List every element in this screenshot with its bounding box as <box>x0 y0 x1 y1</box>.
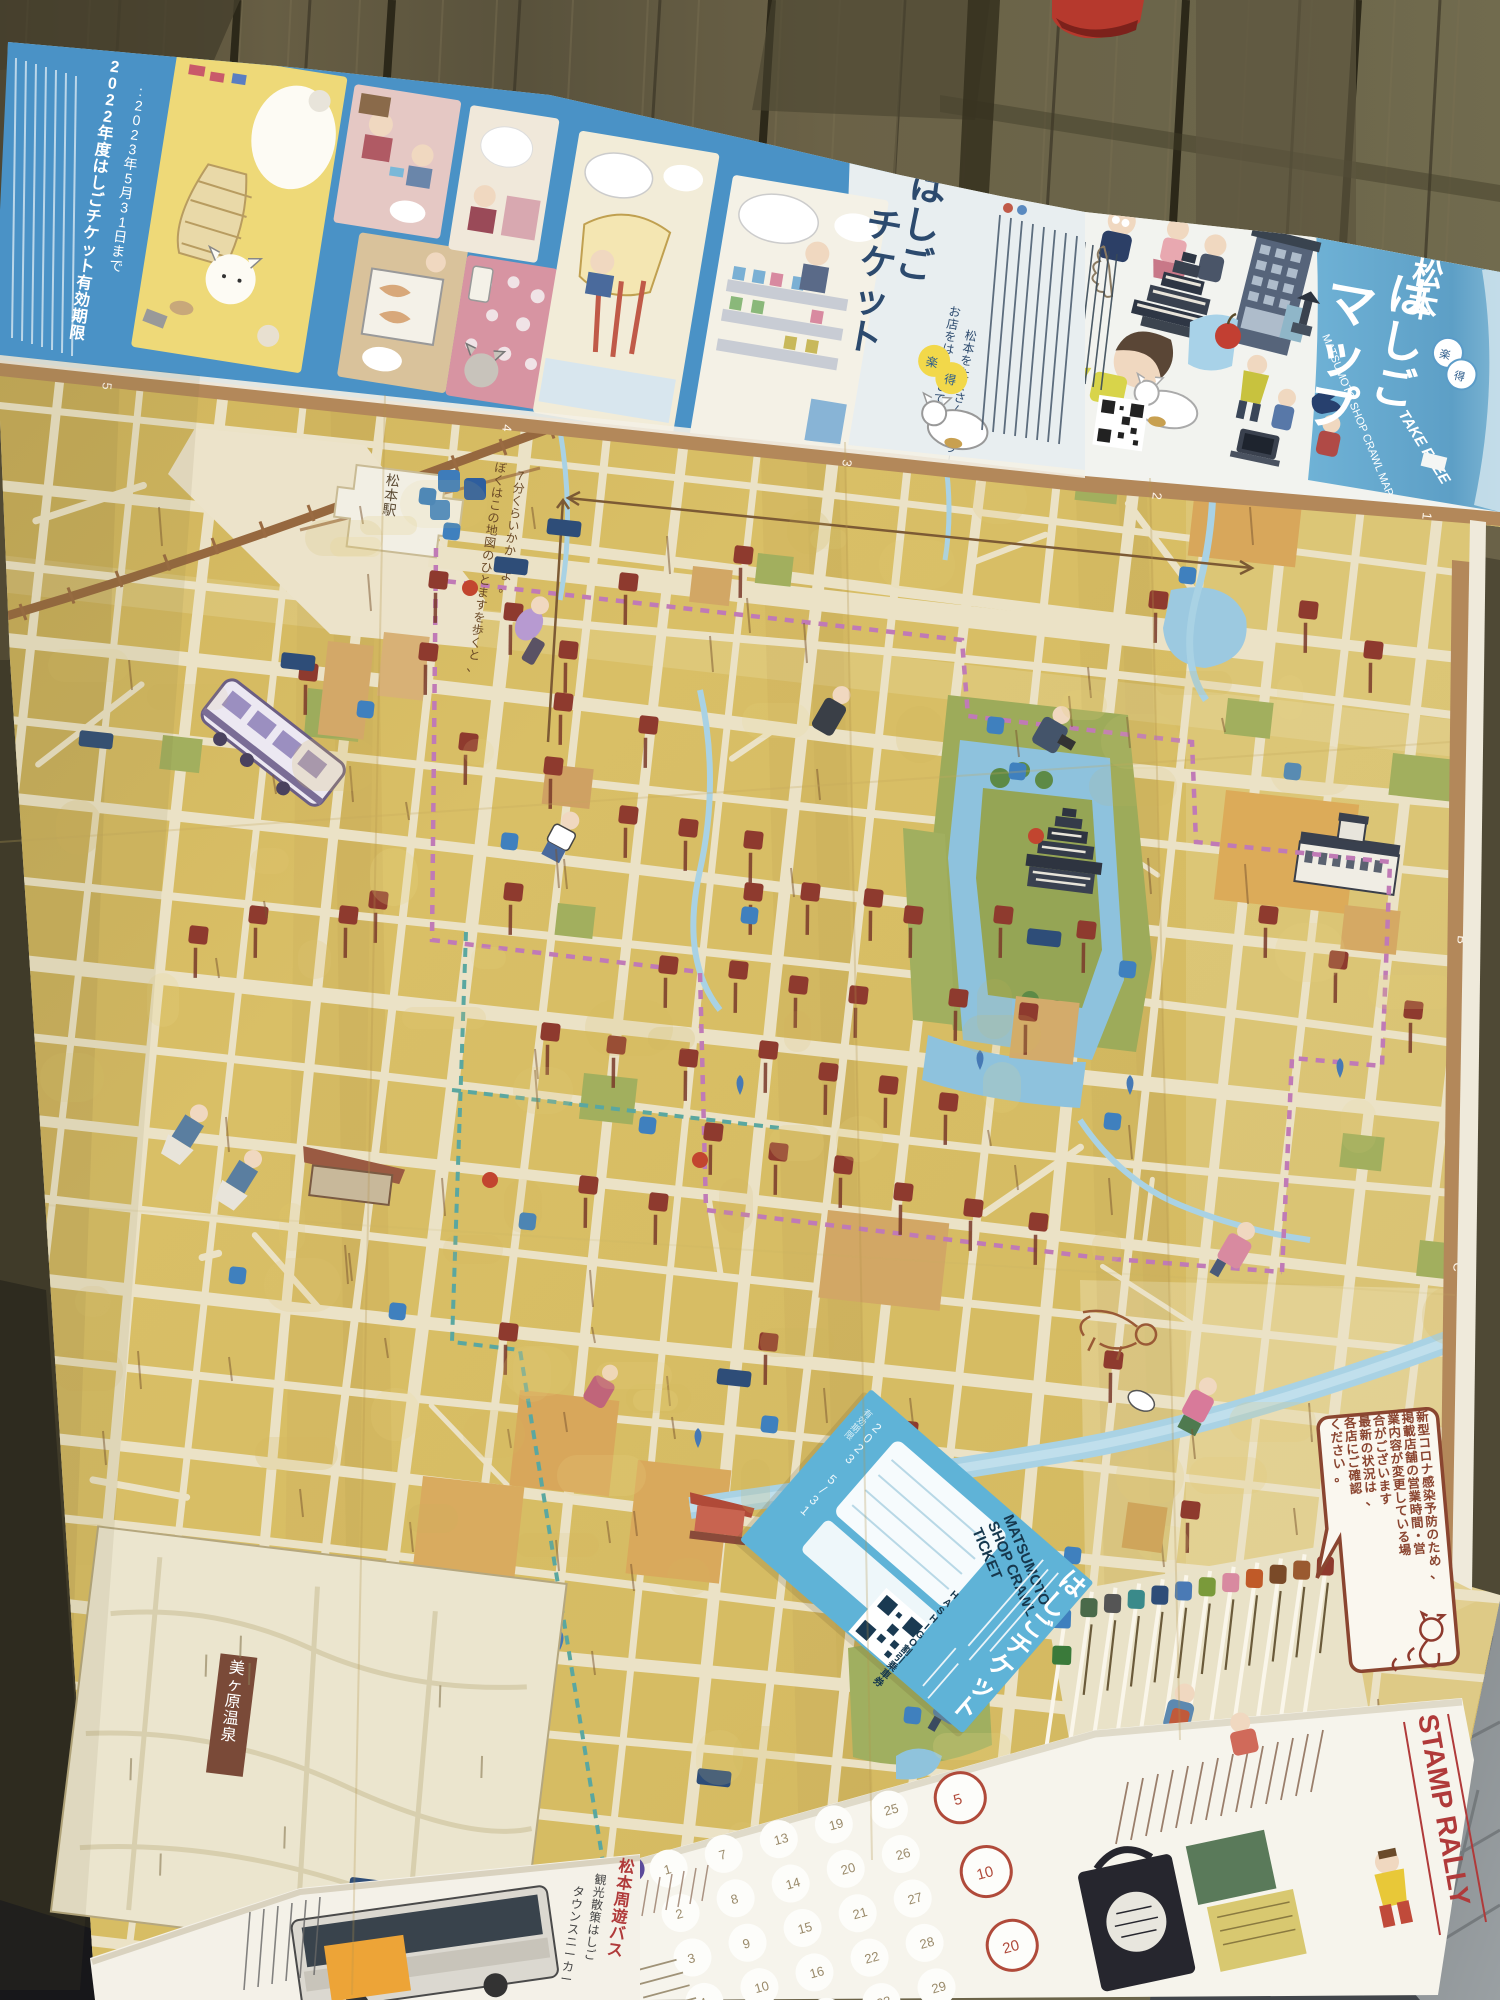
svg-text:ご: ご <box>87 189 106 210</box>
svg-text:ヶ: ヶ <box>226 1676 244 1695</box>
svg-text:温: 温 <box>222 1709 240 1729</box>
svg-text:営: 営 <box>1413 1541 1427 1557</box>
svg-text:、: 、 <box>1429 1566 1443 1581</box>
svg-text:美: 美 <box>228 1659 246 1679</box>
svg-text:ご: ご <box>583 1946 597 1963</box>
svg-text:ご: ご <box>1368 360 1420 416</box>
svg-text:泉: 泉 <box>220 1725 238 1745</box>
svg-text:ス: ス <box>606 1941 624 1960</box>
svg-text:楽: 楽 <box>925 355 939 371</box>
svg-text:す: す <box>1379 1492 1393 1507</box>
svg-text:ご: ご <box>893 241 937 288</box>
svg-text:ト: ト <box>843 314 886 361</box>
svg-text:期: 期 <box>70 306 89 327</box>
svg-text:ー: ー <box>559 1972 573 1988</box>
svg-text:。: 。 <box>498 581 512 597</box>
svg-text:認: 認 <box>1349 1480 1363 1496</box>
svg-text:遊: 遊 <box>610 1906 629 1927</box>
svg-text:得: 得 <box>943 371 957 388</box>
svg-text:有: 有 <box>75 272 94 293</box>
svg-text:、: 、 <box>1365 1493 1379 1508</box>
svg-text:場: 場 <box>1398 1542 1412 1558</box>
svg-text:効: 効 <box>73 289 92 310</box>
svg-text:駅: 駅 <box>381 501 397 519</box>
svg-text:。: 。 <box>1334 1469 1348 1484</box>
svg-text:本: 本 <box>615 1873 634 1894</box>
svg-text:、: 、 <box>466 660 480 676</box>
svg-text:年: 年 <box>96 123 115 144</box>
svg-text:松: 松 <box>618 1856 637 1877</box>
svg-text:原: 原 <box>224 1693 242 1712</box>
svg-text:で: で <box>108 257 124 275</box>
